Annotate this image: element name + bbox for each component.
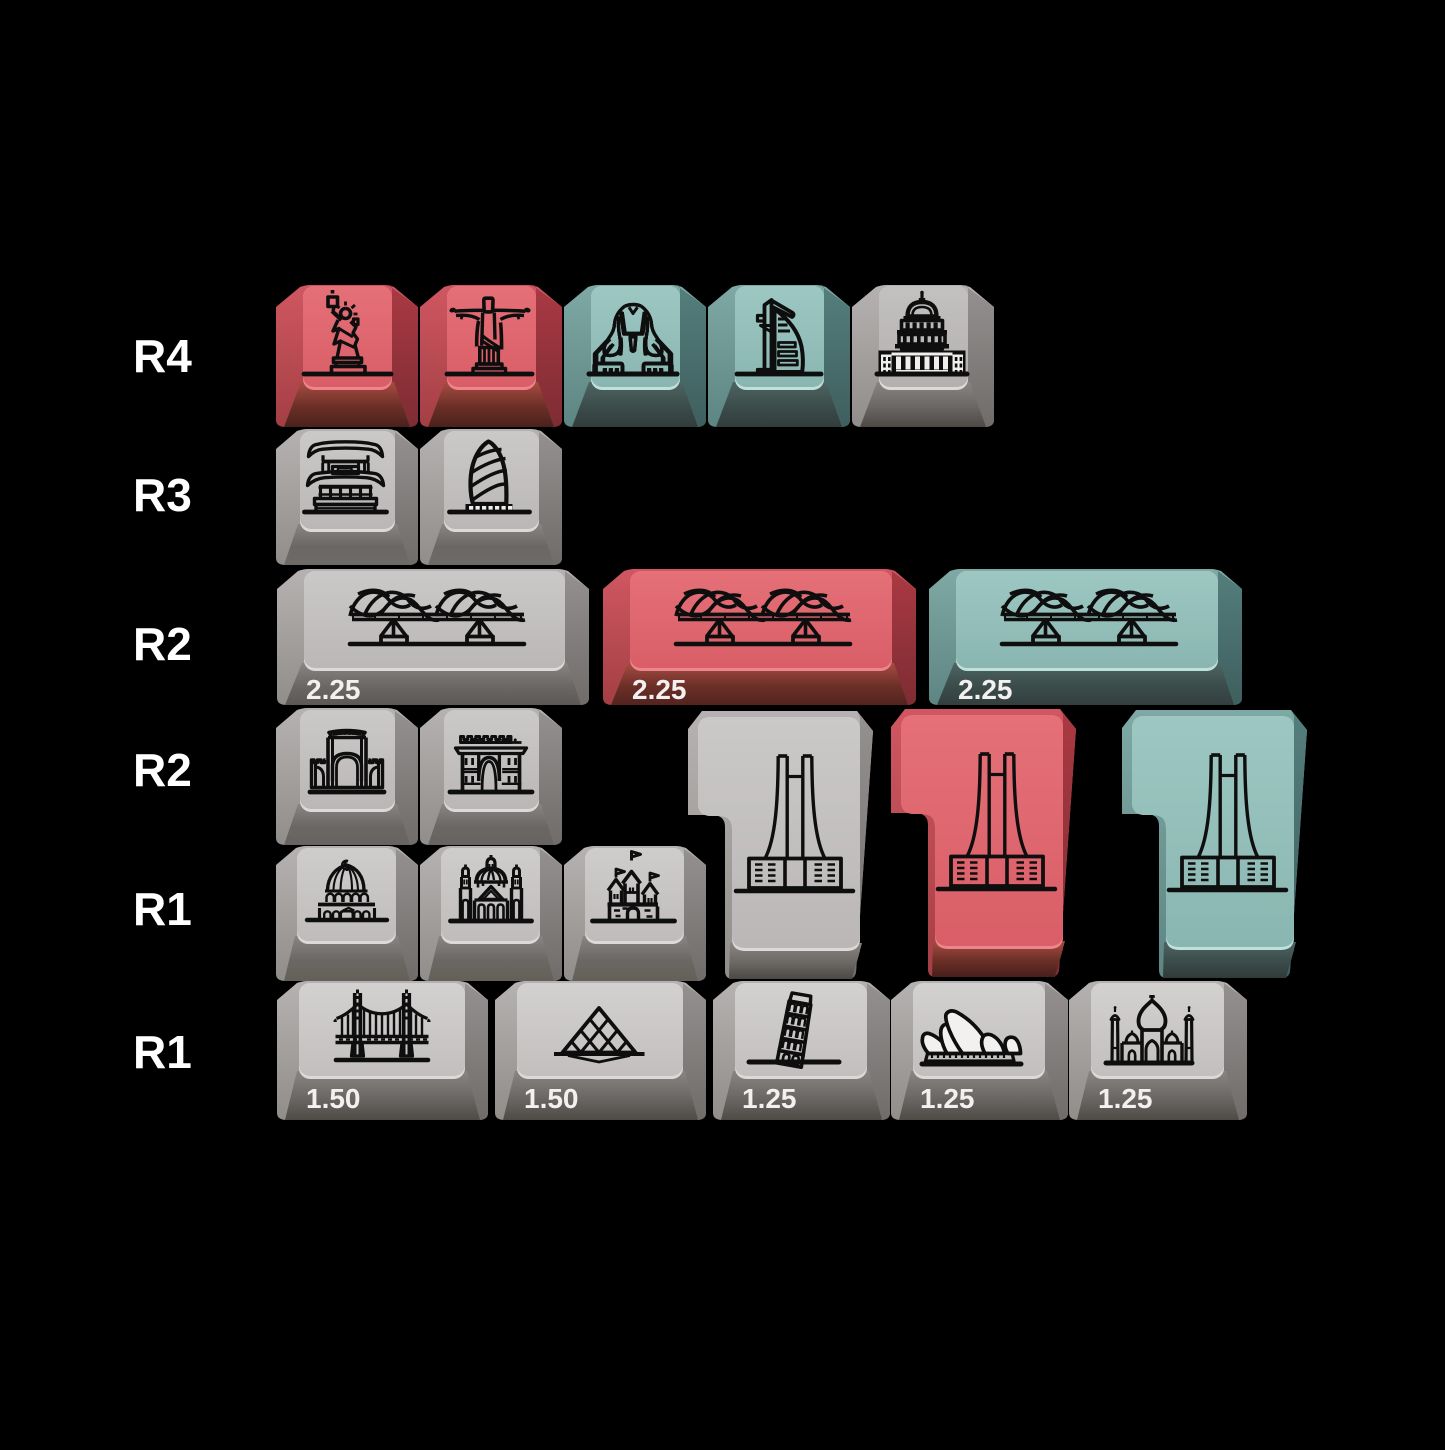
svg-text:R4: R4: [133, 330, 192, 382]
svg-text:R2: R2: [133, 618, 192, 670]
svg-text:R1: R1: [133, 1026, 192, 1078]
svg-text:R3: R3: [133, 469, 192, 521]
svg-text:2.25: 2.25: [306, 674, 361, 705]
svg-text:2.25: 2.25: [632, 674, 687, 705]
svg-text:1.50: 1.50: [306, 1083, 361, 1114]
svg-text:2.25: 2.25: [958, 674, 1013, 705]
svg-text:1.50: 1.50: [524, 1083, 579, 1114]
svg-text:1.25: 1.25: [1098, 1083, 1153, 1114]
svg-text:1.25: 1.25: [920, 1083, 975, 1114]
svg-text:R2: R2: [133, 744, 192, 796]
svg-text:1.25: 1.25: [742, 1083, 797, 1114]
svg-text:R1: R1: [133, 883, 192, 935]
